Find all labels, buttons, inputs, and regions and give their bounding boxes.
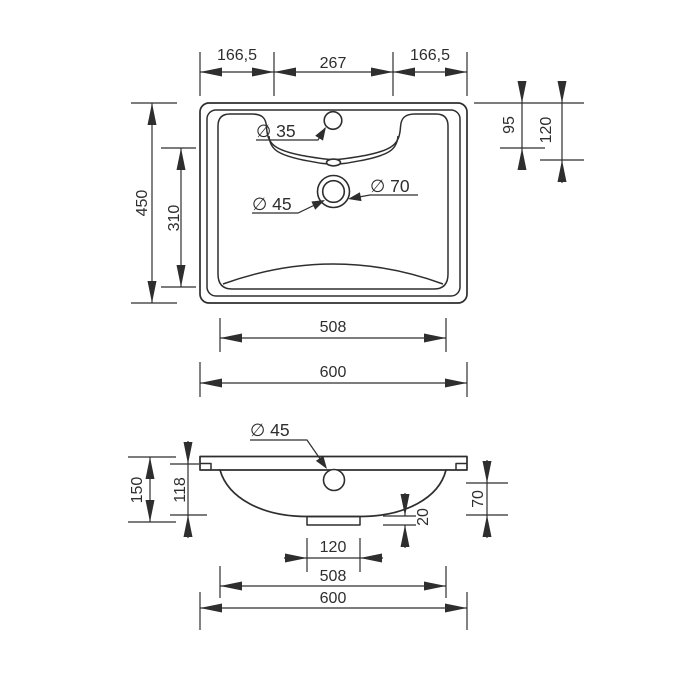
dim-depth-total: 450 [134,190,151,217]
dim-lip-height: 20 [415,508,432,526]
top-view [200,103,467,303]
dim-basin-width-front: 508 [320,568,347,585]
drain-inner-circle [323,181,345,203]
leader-arrow-drain-front [316,456,327,469]
faucet-hole-circle [324,112,342,130]
rim-notch-right [456,464,467,471]
dim-width-seg-left: 166,5 [217,47,257,64]
dim-height-total: 150 [129,477,146,504]
dim-width-total-front: 600 [320,590,347,607]
label-drain-inner-dia: ∅ 45 [252,194,292,214]
dim-offset-70: 70 [470,490,487,508]
dim-basin-width-top: 508 [320,319,347,336]
label-faucet-dia: ∅ 35 [256,121,296,141]
leader-arrow-faucet [315,127,326,141]
label-drain-dia-front: ∅ 45 [250,420,290,440]
bowl-front-slope [223,264,443,284]
dim-offset-120: 120 [538,117,555,144]
sink-technical-drawing: 166,5 267 166,5 450 310 95 120 508 [0,0,684,684]
leader-arrow-drain-inner [311,200,325,210]
rim-profile [200,457,467,471]
dim-basin-depth: 310 [166,205,183,232]
label-drain-outer-dia: ∅ 70 [370,176,410,196]
dim-width-seg-center: 267 [320,55,347,72]
overflow-slot [327,159,341,166]
dim-bowl-depth: 118 [172,477,189,503]
dim-width-seg-right: 166,5 [410,47,450,64]
drain-hole-front [324,470,345,491]
dim-width-total-top: 600 [320,364,347,381]
dim-offset-95: 95 [501,116,518,134]
top-view-dimensions: 166,5 267 166,5 450 310 95 120 508 [131,47,584,397]
rim-notch-left [200,464,211,471]
dim-drain-width: 120 [320,539,347,556]
drain-lip [307,517,360,526]
